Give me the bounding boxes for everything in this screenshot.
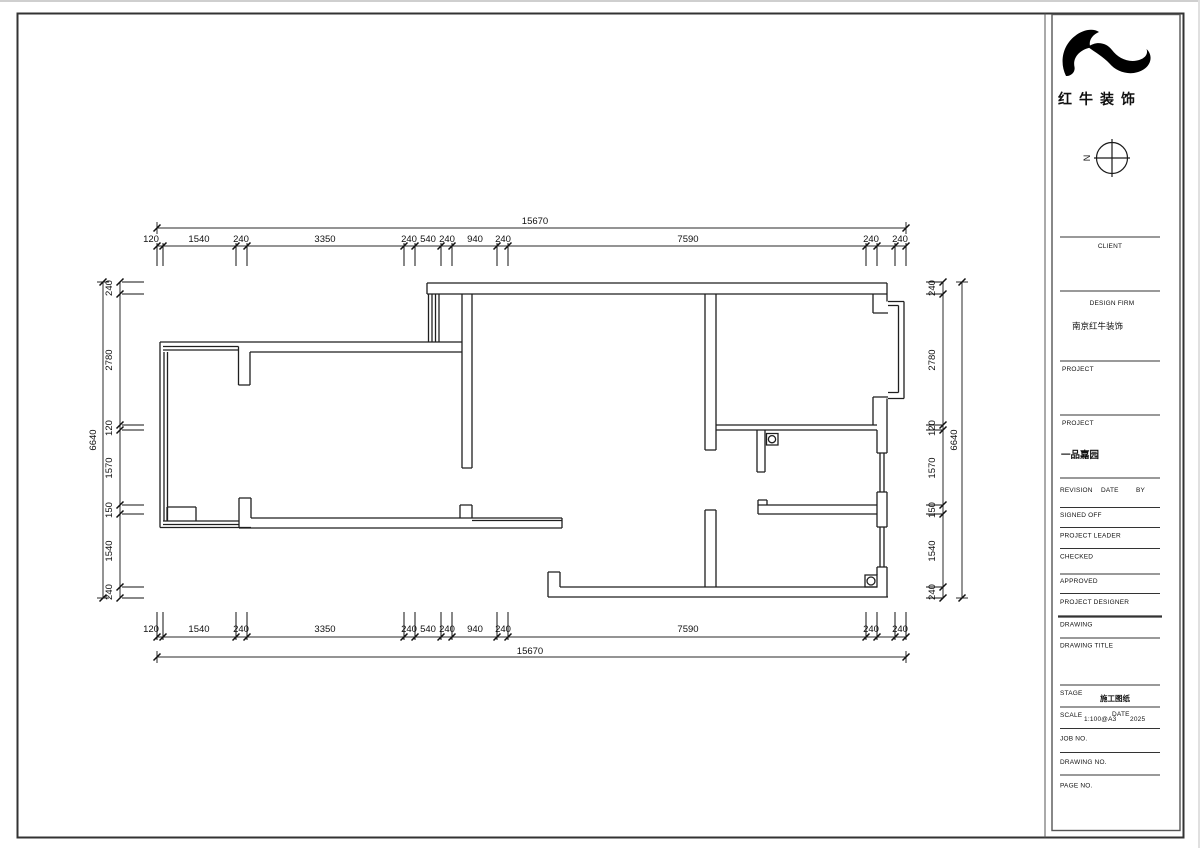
dim-label: 150 [927,502,938,518]
approved-label: APPROVED [1060,578,1098,585]
company-logo: 红牛装饰 [1058,30,1151,107]
logo-swoosh-icon [1063,30,1151,76]
date-label: DATE [1101,487,1119,494]
client-label: CLIENT [1098,243,1122,250]
project-name: 一品嘉园 [1061,449,1099,461]
dim-label: 120 [927,420,938,436]
dim-label: 240 [401,234,417,245]
dim-label: 240 [233,624,249,635]
dim-label: 240 [892,234,908,245]
dim-label: 240 [233,234,249,245]
dim-label: 940 [467,624,483,635]
design-firm-label: DESIGN FIRM [1090,300,1135,307]
dim-bottom-total: 15670 [517,646,543,657]
right-wall-window-lower [877,527,887,567]
dimension-labels: 15670 120 1540 240 3350 240 540 240 940 … [88,216,960,657]
dimension-ticks [100,225,966,661]
dim-label: 120 [143,624,159,635]
logo-company-name: 红牛装饰 [1058,91,1142,107]
dim-label: 7590 [677,234,698,245]
drawing-no-label: DRAWING NO. [1060,759,1107,766]
dim-label: 240 [927,584,938,600]
job-no-label: JOB NO. [1060,736,1087,743]
scale-date-value: 2025 [1130,716,1145,723]
page-no-label: PAGE NO. [1060,783,1093,790]
dim-label: 1540 [188,624,209,635]
dim-label: 1540 [188,234,209,245]
design-firm-value: 南京红牛装饰 [1072,321,1124,331]
stage-label: STAGE [1060,690,1083,697]
revision-label: REVISION [1060,487,1093,494]
right-wall-window-upper [877,453,887,492]
center-partition-walls [705,294,877,587]
bay-window [888,302,904,399]
dim-label: 540 [420,624,436,635]
project-leader-label: PROJECT LEADER [1060,533,1121,540]
dim-label: 940 [467,234,483,245]
stage-value: 施工图纸 [1100,693,1130,703]
dim-label: 2780 [104,349,115,370]
dim-label: 1540 [927,540,938,561]
drawing-title-label: DRAWING TITLE [1060,643,1114,650]
dim-top-total: 15670 [522,216,548,227]
north-label: N [1082,155,1092,162]
cad-floor-plan-sheet: { "logo": { "company_name": "红牛装饰" }, "c… [0,0,1200,848]
flue-circle-bath [867,577,875,585]
dim-label: 3350 [314,234,335,245]
dim-label: 1540 [104,540,115,561]
drawing-label: DRAWING [1060,622,1093,629]
dim-left-total: 6640 [88,429,99,450]
project-label-2: PROJECT [1062,420,1094,427]
dim-label: 240 [401,624,417,635]
drawing-canvas: 15670 120 1540 240 3350 240 540 240 940 … [0,0,1200,848]
sheet-border [18,14,1184,838]
top-exterior-wall [427,283,887,342]
dim-label: 240 [863,234,879,245]
north-compass: N [1082,139,1130,177]
scale-label: SCALE [1060,712,1083,719]
dim-label: 3350 [314,624,335,635]
dim-label: 240 [892,624,908,635]
signed-off-label: SIGNED OFF [1060,512,1102,519]
dim-label: 240 [104,584,115,600]
dim-label: 240 [439,234,455,245]
dim-label: 240 [927,280,938,296]
dim-label: 240 [439,624,455,635]
dim-label: 7590 [677,624,698,635]
dim-label: 240 [495,624,511,635]
dim-label: 240 [104,280,115,296]
dim-right-total: 6640 [949,429,960,450]
flue-circle-kitchen [768,436,775,443]
left-room-walls [239,294,562,528]
floor-plan-walls [160,283,904,597]
project-designer-label: PROJECT DESIGNER [1060,599,1129,606]
scale-date-label: DATE [1112,711,1130,718]
dim-label: 540 [420,234,436,245]
dim-label: 2780 [927,349,938,370]
dim-label: 240 [495,234,511,245]
bottom-exterior-wall [548,572,888,597]
balcony-walls [160,342,462,528]
by-label: BY [1136,487,1146,494]
dim-label: 240 [863,624,879,635]
title-block-text: CLIENT DESIGN FIRM 南京红牛装饰 PROJECT PROJEC… [1060,243,1146,790]
dim-label: 120 [143,234,159,245]
dim-label: 120 [104,420,115,436]
checked-label: CHECKED [1060,554,1093,561]
project-label-1: PROJECT [1062,366,1094,373]
dim-label: 150 [104,502,115,518]
dim-label: 1570 [927,457,938,478]
dim-label: 1570 [104,457,115,478]
